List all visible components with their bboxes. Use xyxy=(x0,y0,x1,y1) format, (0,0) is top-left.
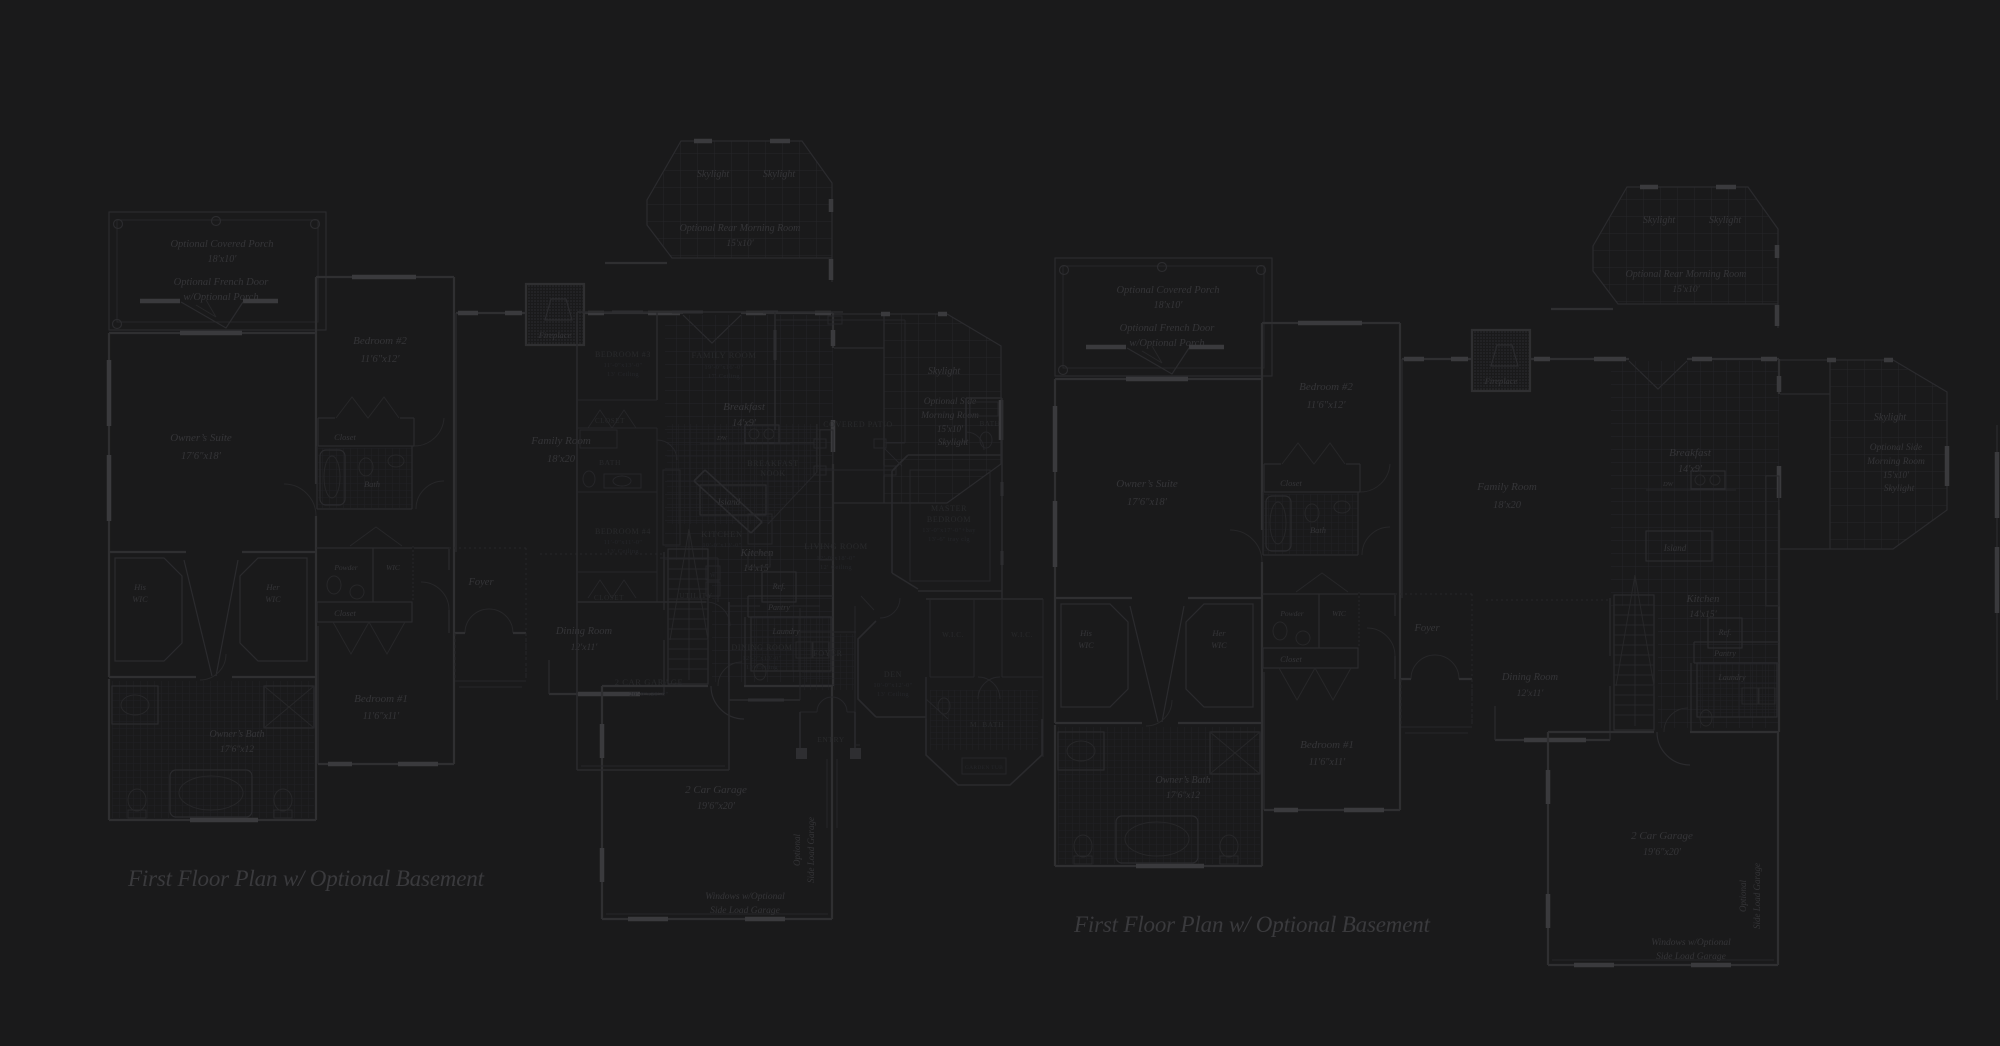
svg-text:FOYER: FOYER xyxy=(813,649,842,658)
svg-text:DEN: DEN xyxy=(884,670,902,679)
svg-text:19′-0″x16′-0″: 19′-0″x16′-0″ xyxy=(704,364,743,371)
svg-text:COVERED PATIO: COVERED PATIO xyxy=(823,420,893,429)
svg-text:ENTRY: ENTRY xyxy=(817,735,845,744)
svg-text:GARDEN TUB: GARDEN TUB xyxy=(965,765,1003,771)
svg-text:12′ Ceiling: 12′ Ceiling xyxy=(820,564,852,571)
svg-text:W.I.C.: W.I.C. xyxy=(1011,631,1033,639)
svg-text:FAMILY ROOM: FAMILY ROOM xyxy=(691,350,756,360)
svg-text:13′ Ceiling: 13′ Ceiling xyxy=(877,691,909,698)
svg-text:CLOSET: CLOSET xyxy=(594,594,624,602)
svg-text:UTILITY: UTILITY xyxy=(679,591,713,600)
svg-text:13′-0″x17′-0″+bay: 13′-0″x17′-0″+bay xyxy=(922,527,976,534)
svg-text:BATH: BATH xyxy=(599,458,621,467)
svg-text:11′-0″x13′-0″: 11′-0″x13′-0″ xyxy=(604,362,643,369)
svg-text:12′-0″x13′-0″: 12′-0″x13′-0″ xyxy=(742,655,781,662)
svg-text:W.I.C.: W.I.C. xyxy=(942,631,964,639)
svg-text:NOOK: NOOK xyxy=(760,469,786,478)
svg-text:12′-0″x18′-0″: 12′-0″x18′-0″ xyxy=(816,555,855,562)
svg-text:BEDROOM #3: BEDROOM #3 xyxy=(595,350,651,359)
svg-text:13′ Ceiling: 13′ Ceiling xyxy=(607,371,639,378)
svg-text:W: W xyxy=(710,573,716,579)
svg-text:10′-0″x13′-0″: 10′-0″x13′-0″ xyxy=(702,542,741,549)
svg-text:13′ Ceiling: 13′ Ceiling xyxy=(607,548,639,555)
svg-text:10′-0″x12′-0″: 10′-0″x12′-0″ xyxy=(873,682,912,689)
svg-text:BATH: BATH xyxy=(980,420,1001,428)
svg-text:CLOSET: CLOSET xyxy=(595,417,625,425)
svg-text:LIVING ROOM: LIVING ROOM xyxy=(804,541,868,551)
svg-text:11′-0″x11′-0″: 11′-0″x11′-0″ xyxy=(604,539,643,546)
svg-text:2 CAR GARAGE: 2 CAR GARAGE xyxy=(615,677,684,687)
svg-text:KITCHEN: KITCHEN xyxy=(701,529,743,539)
svg-text:BEDROOM #4: BEDROOM #4 xyxy=(595,527,651,536)
svg-text:BREAKFAST: BREAKFAST xyxy=(747,459,798,468)
svg-text:MASTER: MASTER xyxy=(931,504,967,513)
svg-text:BEDROOM: BEDROOM xyxy=(927,515,971,524)
svg-text:DINING ROOM: DINING ROOM xyxy=(731,643,792,652)
svg-text:13′ Ceiling: 13′ Ceiling xyxy=(746,664,778,671)
svg-text:13′-6″ tray clg: 13′-6″ tray clg xyxy=(928,536,970,543)
svg-text:17′ Ceiling: 17′ Ceiling xyxy=(708,373,740,380)
svg-text:20′-0″x20′-0″: 20′-0″x20′-0″ xyxy=(629,691,668,698)
svg-text:M. BATH: M. BATH xyxy=(970,720,1004,729)
